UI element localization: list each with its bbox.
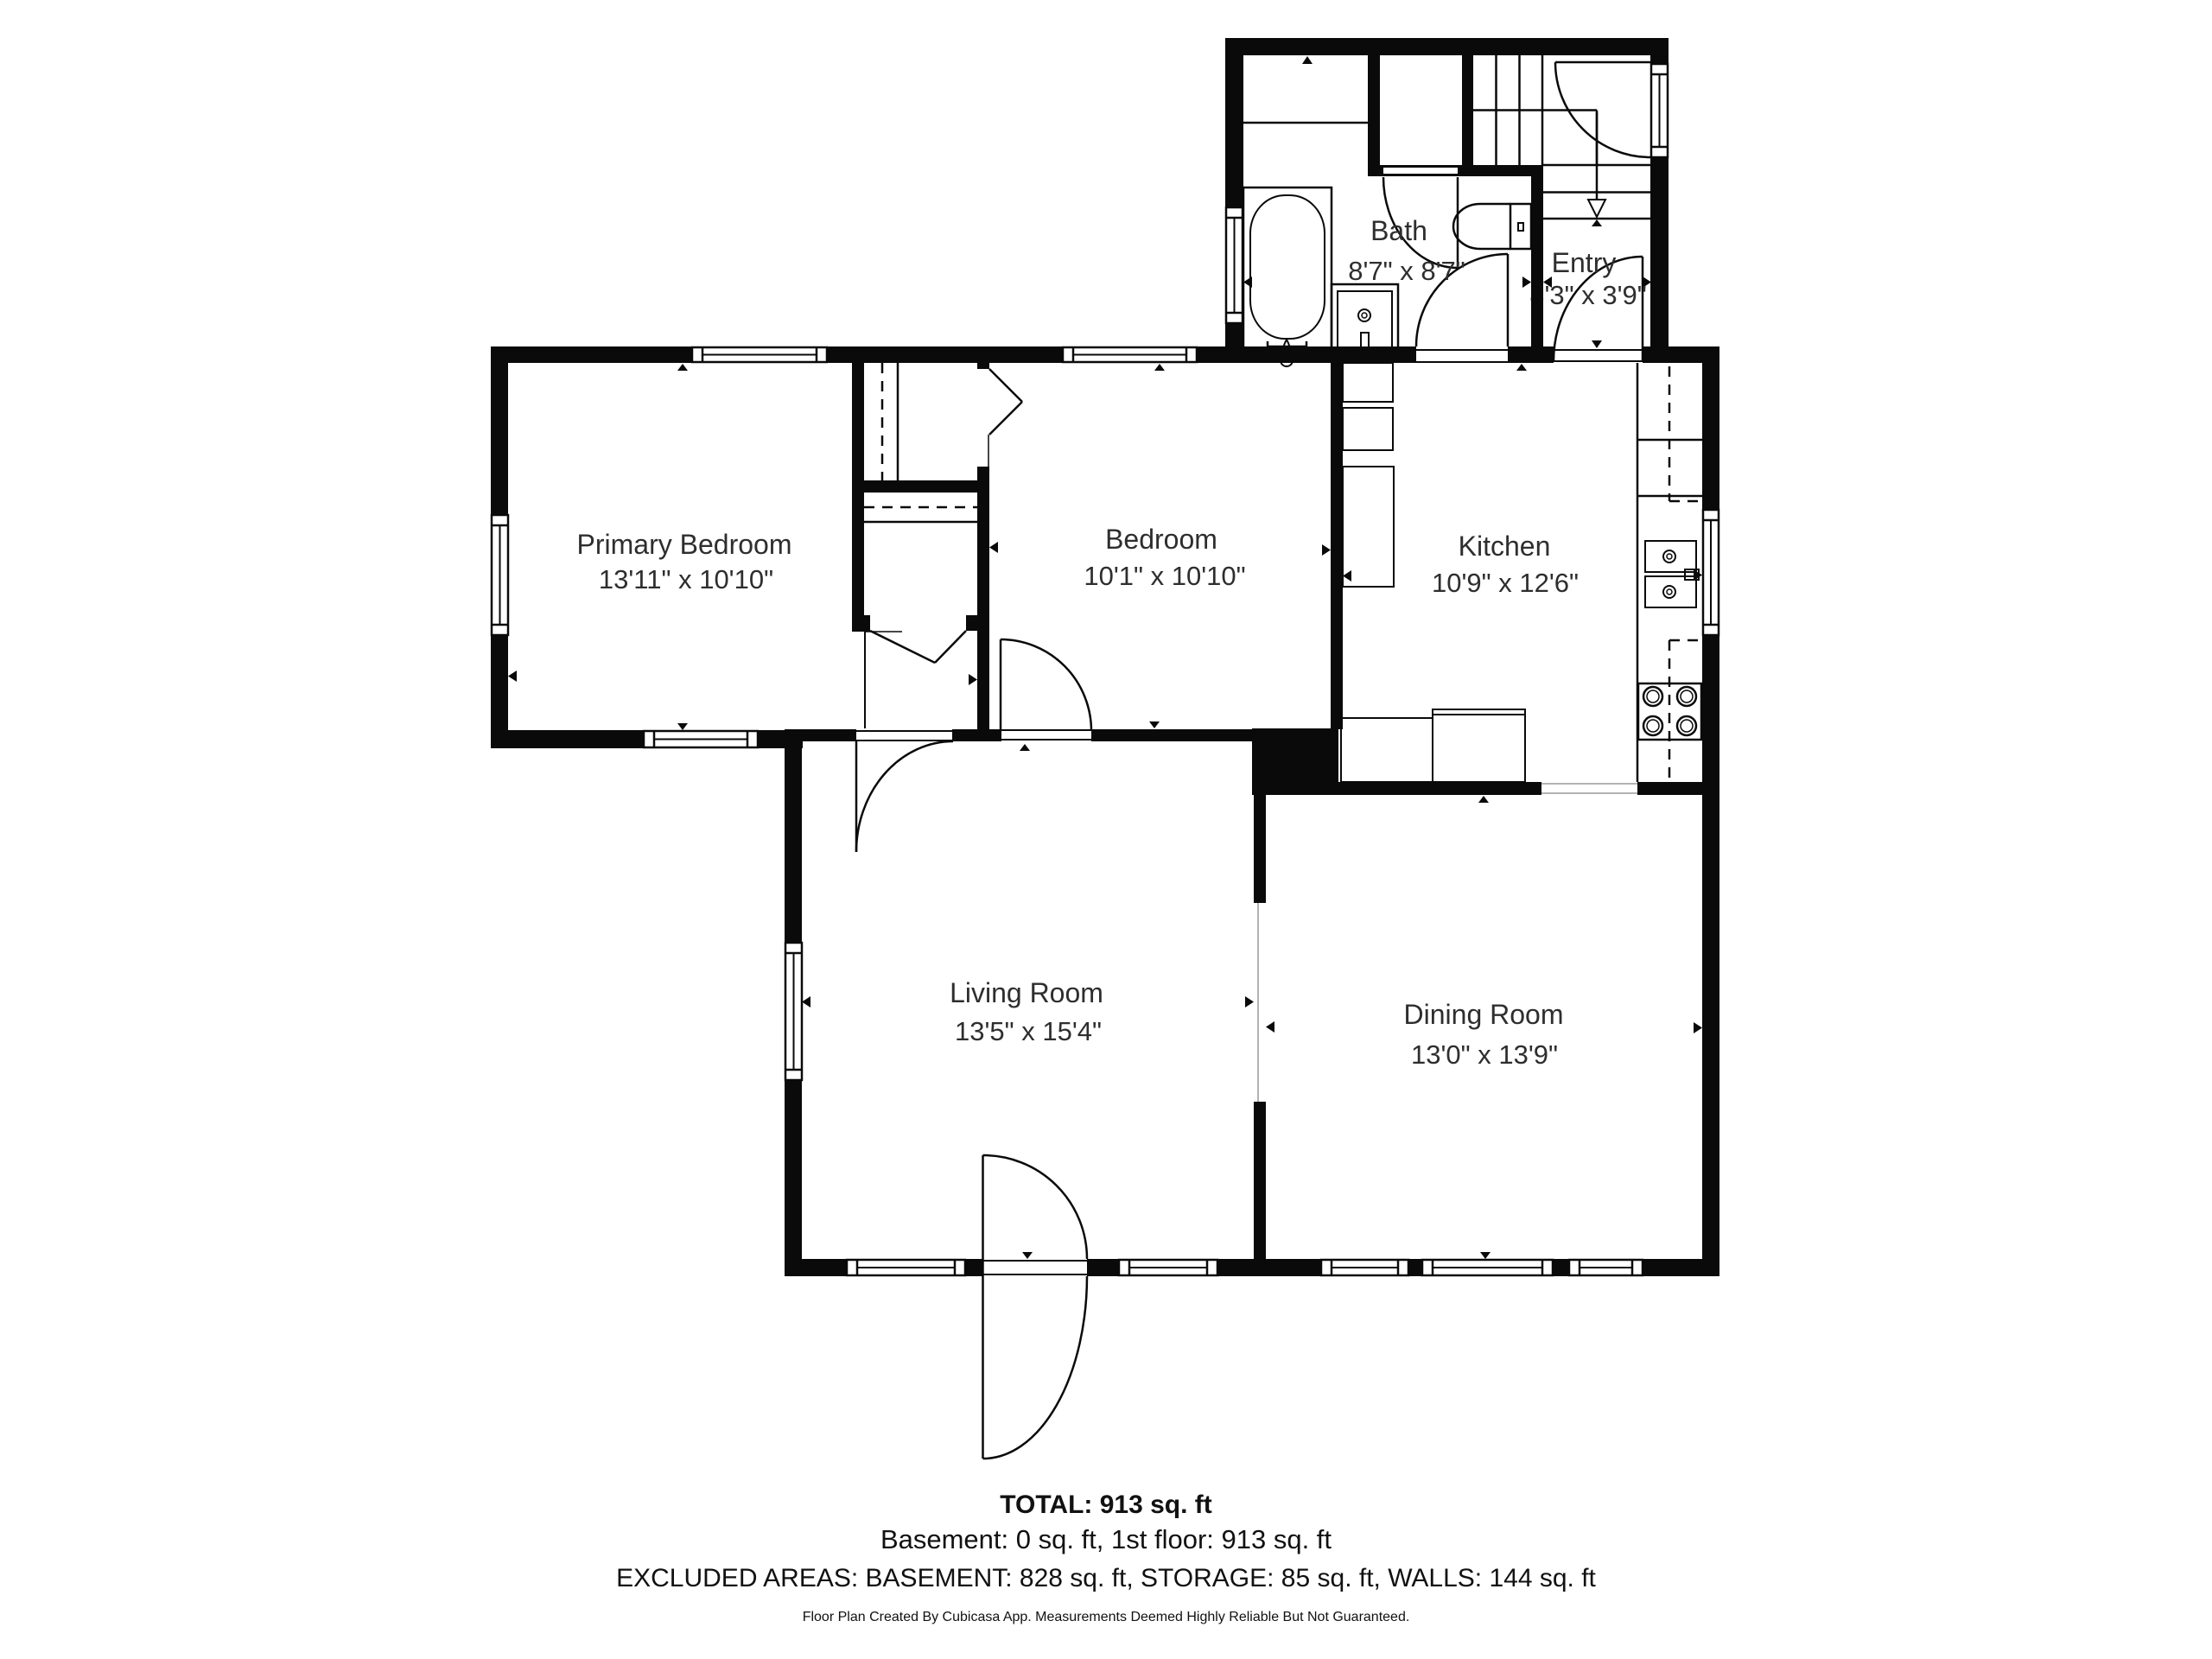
- svg-text:Basement: 0 sq. ft, 1st floor:: Basement: 0 sq. ft, 1st floor: 913 sq. f…: [880, 1524, 1332, 1554]
- svg-text:13'5" x 15'4": 13'5" x 15'4": [955, 1016, 1102, 1046]
- svg-text:13'11" x 10'10": 13'11" x 10'10": [599, 564, 773, 594]
- svg-text:Floor Plan Created By Cubicasa: Floor Plan Created By Cubicasa App. Meas…: [803, 1610, 1410, 1624]
- svg-text:Entry: Entry: [1552, 247, 1617, 278]
- svg-text:Kitchen: Kitchen: [1459, 531, 1551, 562]
- svg-text:Bedroom: Bedroom: [1105, 524, 1217, 555]
- svg-text:TOTAL: 913 sq. ft: TOTAL: 913 sq. ft: [1000, 1491, 1212, 1519]
- svg-text:8'7" x 8'7": 8'7" x 8'7": [1348, 256, 1465, 286]
- svg-text:Bath: Bath: [1370, 215, 1427, 246]
- svg-text:EXCLUDED AREAS: BASEMENT: 828: EXCLUDED AREAS: BASEMENT: 828 sq. ft, ST…: [616, 1564, 1596, 1592]
- svg-text:10'9" x 12'6": 10'9" x 12'6": [1432, 568, 1579, 598]
- svg-text:13'0" x 13'9": 13'0" x 13'9": [1411, 1039, 1558, 1070]
- svg-text:10'1" x 10'10": 10'1" x 10'10": [1084, 561, 1245, 591]
- svg-text:Living Room: Living Room: [950, 977, 1103, 1008]
- svg-text:8'3" x 3'9": 8'3" x 3'9": [1529, 280, 1647, 310]
- svg-text:Dining Room: Dining Room: [1404, 999, 1564, 1030]
- svg-text:Primary Bedroom: Primary Bedroom: [577, 529, 792, 560]
